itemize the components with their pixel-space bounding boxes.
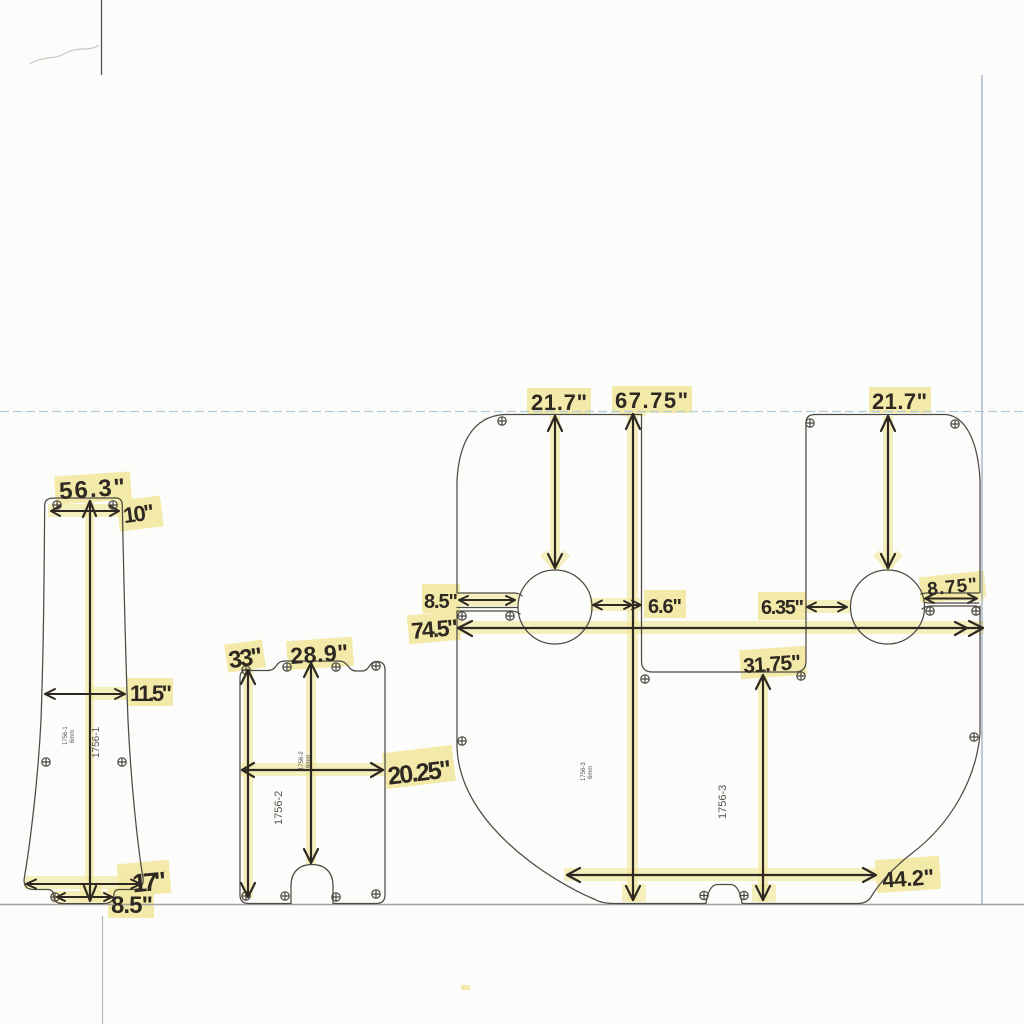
svg-text:21.7": 21.7"	[872, 389, 927, 414]
svg-text:6.6": 6.6"	[648, 596, 682, 618]
svg-text:6mm: 6mm	[70, 730, 76, 743]
svg-text:31.75": 31.75"	[743, 651, 802, 678]
svg-text:6mm: 6mm	[306, 755, 312, 768]
svg-text:6mm: 6mm	[588, 766, 594, 779]
svg-text:8.5": 8.5"	[424, 591, 458, 613]
svg-text:8.5": 8.5"	[111, 892, 153, 919]
svg-text:10": 10"	[122, 499, 156, 528]
svg-text:74.5": 74.5"	[410, 614, 459, 644]
svg-text:28.9": 28.9"	[289, 639, 349, 669]
svg-text:1756-1: 1756-1	[91, 726, 102, 758]
svg-text:1756-2: 1756-2	[299, 751, 305, 770]
svg-text:1756-3: 1756-3	[581, 762, 587, 781]
svg-text:56.3": 56.3"	[58, 474, 126, 506]
svg-text:1756-2: 1756-2	[273, 791, 285, 825]
svg-text:1756-3: 1756-3	[717, 785, 729, 819]
svg-text:6.35": 6.35"	[761, 597, 804, 619]
svg-text:21.7": 21.7"	[531, 390, 587, 415]
svg-text:44.2": 44.2"	[881, 864, 935, 893]
svg-text:67.75": 67.75"	[615, 388, 688, 413]
svg-text:1756-1: 1756-1	[63, 726, 69, 745]
svg-text:33": 33"	[227, 643, 264, 674]
svg-text:11.5": 11.5"	[130, 681, 172, 706]
